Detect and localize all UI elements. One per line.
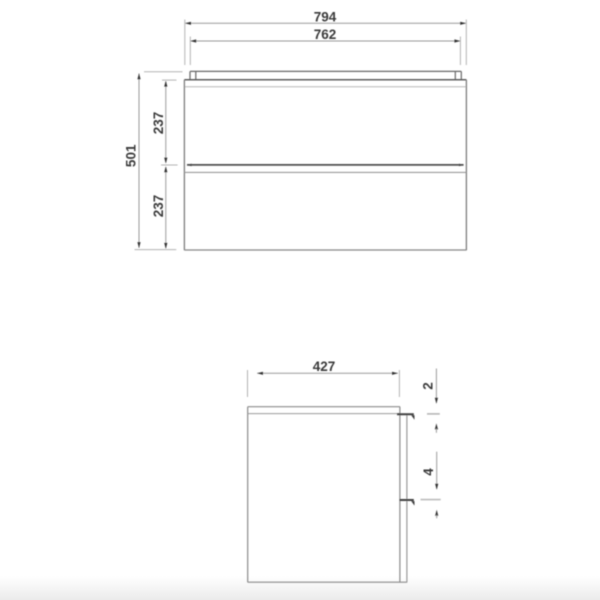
- svg-text:4: 4: [421, 468, 436, 476]
- svg-text:762: 762: [314, 27, 337, 42]
- svg-text:427: 427: [313, 359, 336, 374]
- svg-text:794: 794: [314, 9, 337, 24]
- svg-text:501: 501: [124, 144, 139, 167]
- svg-text:237: 237: [151, 112, 166, 135]
- svg-text:2: 2: [420, 382, 435, 390]
- svg-text:237: 237: [151, 195, 166, 218]
